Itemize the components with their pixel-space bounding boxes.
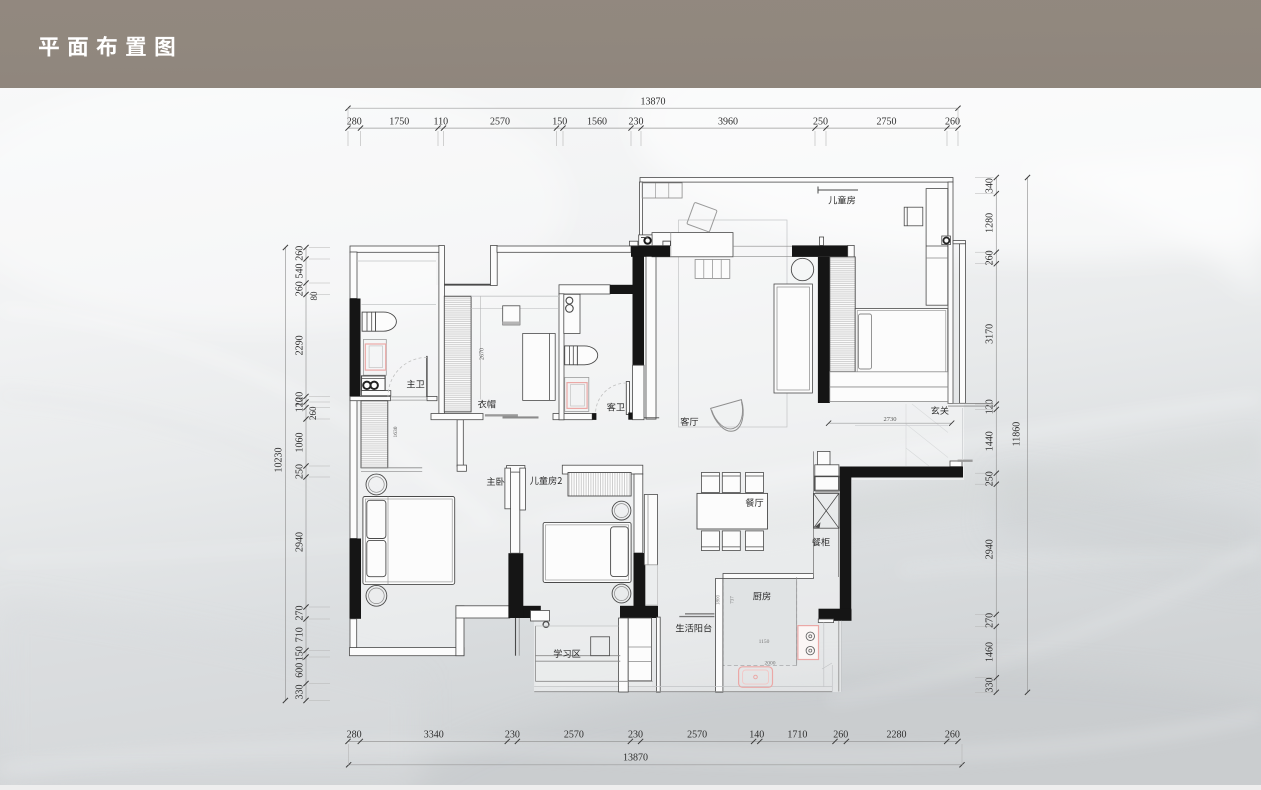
svg-text:140: 140 xyxy=(749,730,764,741)
svg-text:2000: 2000 xyxy=(765,661,776,667)
svg-text:1060: 1060 xyxy=(295,433,306,453)
svg-text:260: 260 xyxy=(833,730,848,741)
svg-text:230: 230 xyxy=(629,116,644,127)
svg-text:120: 120 xyxy=(295,397,306,412)
svg-text:3960: 3960 xyxy=(718,116,738,127)
svg-text:737: 737 xyxy=(731,596,736,604)
svg-text:11860: 11860 xyxy=(1012,422,1023,447)
svg-text:2750: 2750 xyxy=(877,116,897,127)
svg-text:120: 120 xyxy=(985,399,996,414)
svg-text:1800: 1800 xyxy=(717,595,722,606)
svg-text:230: 230 xyxy=(628,730,643,741)
svg-text:3340: 3340 xyxy=(424,730,444,741)
svg-text:260: 260 xyxy=(308,406,318,420)
svg-text:280: 280 xyxy=(347,116,362,127)
svg-text:2730: 2730 xyxy=(884,416,897,423)
svg-text:2670: 2670 xyxy=(480,348,486,360)
svg-text:10230: 10230 xyxy=(274,448,285,473)
svg-text:260: 260 xyxy=(295,281,306,296)
svg-text:2570: 2570 xyxy=(687,730,707,741)
svg-text:2940: 2940 xyxy=(985,539,996,559)
svg-text:150: 150 xyxy=(552,116,567,127)
svg-text:260: 260 xyxy=(295,246,306,261)
svg-text:1630: 1630 xyxy=(393,426,399,437)
svg-text:2570: 2570 xyxy=(490,116,510,127)
svg-text:1750: 1750 xyxy=(389,116,409,127)
svg-text:600: 600 xyxy=(295,663,306,678)
svg-text:260: 260 xyxy=(985,250,996,265)
svg-text:13870: 13870 xyxy=(641,97,666,108)
svg-text:1460: 1460 xyxy=(985,642,996,662)
svg-text:13870: 13870 xyxy=(623,753,648,764)
svg-text:1440: 1440 xyxy=(985,431,996,451)
svg-text:1150: 1150 xyxy=(759,639,770,645)
svg-text:2280: 2280 xyxy=(887,730,907,741)
svg-text:270: 270 xyxy=(295,606,306,621)
svg-text:2940: 2940 xyxy=(295,532,306,552)
svg-text:280: 280 xyxy=(347,730,362,741)
svg-text:330: 330 xyxy=(295,685,306,700)
svg-text:80: 80 xyxy=(309,291,319,301)
svg-text:540: 540 xyxy=(295,264,306,279)
svg-text:2290: 2290 xyxy=(295,335,306,355)
svg-text:230: 230 xyxy=(505,730,520,741)
svg-text:270: 270 xyxy=(985,613,996,628)
svg-text:710: 710 xyxy=(295,627,306,642)
svg-text:340: 340 xyxy=(985,178,996,193)
svg-text:250: 250 xyxy=(985,471,996,486)
svg-text:110: 110 xyxy=(433,116,448,127)
svg-text:250: 250 xyxy=(295,464,306,479)
svg-text:1280: 1280 xyxy=(985,213,996,233)
svg-text:330: 330 xyxy=(985,678,996,693)
svg-text:150: 150 xyxy=(295,646,306,661)
svg-text:2570: 2570 xyxy=(564,730,584,741)
svg-text:250: 250 xyxy=(813,116,828,127)
svg-text:260: 260 xyxy=(945,730,960,741)
svg-text:1560: 1560 xyxy=(587,116,607,127)
svg-text:3170: 3170 xyxy=(985,324,996,344)
svg-text:1710: 1710 xyxy=(787,730,807,741)
